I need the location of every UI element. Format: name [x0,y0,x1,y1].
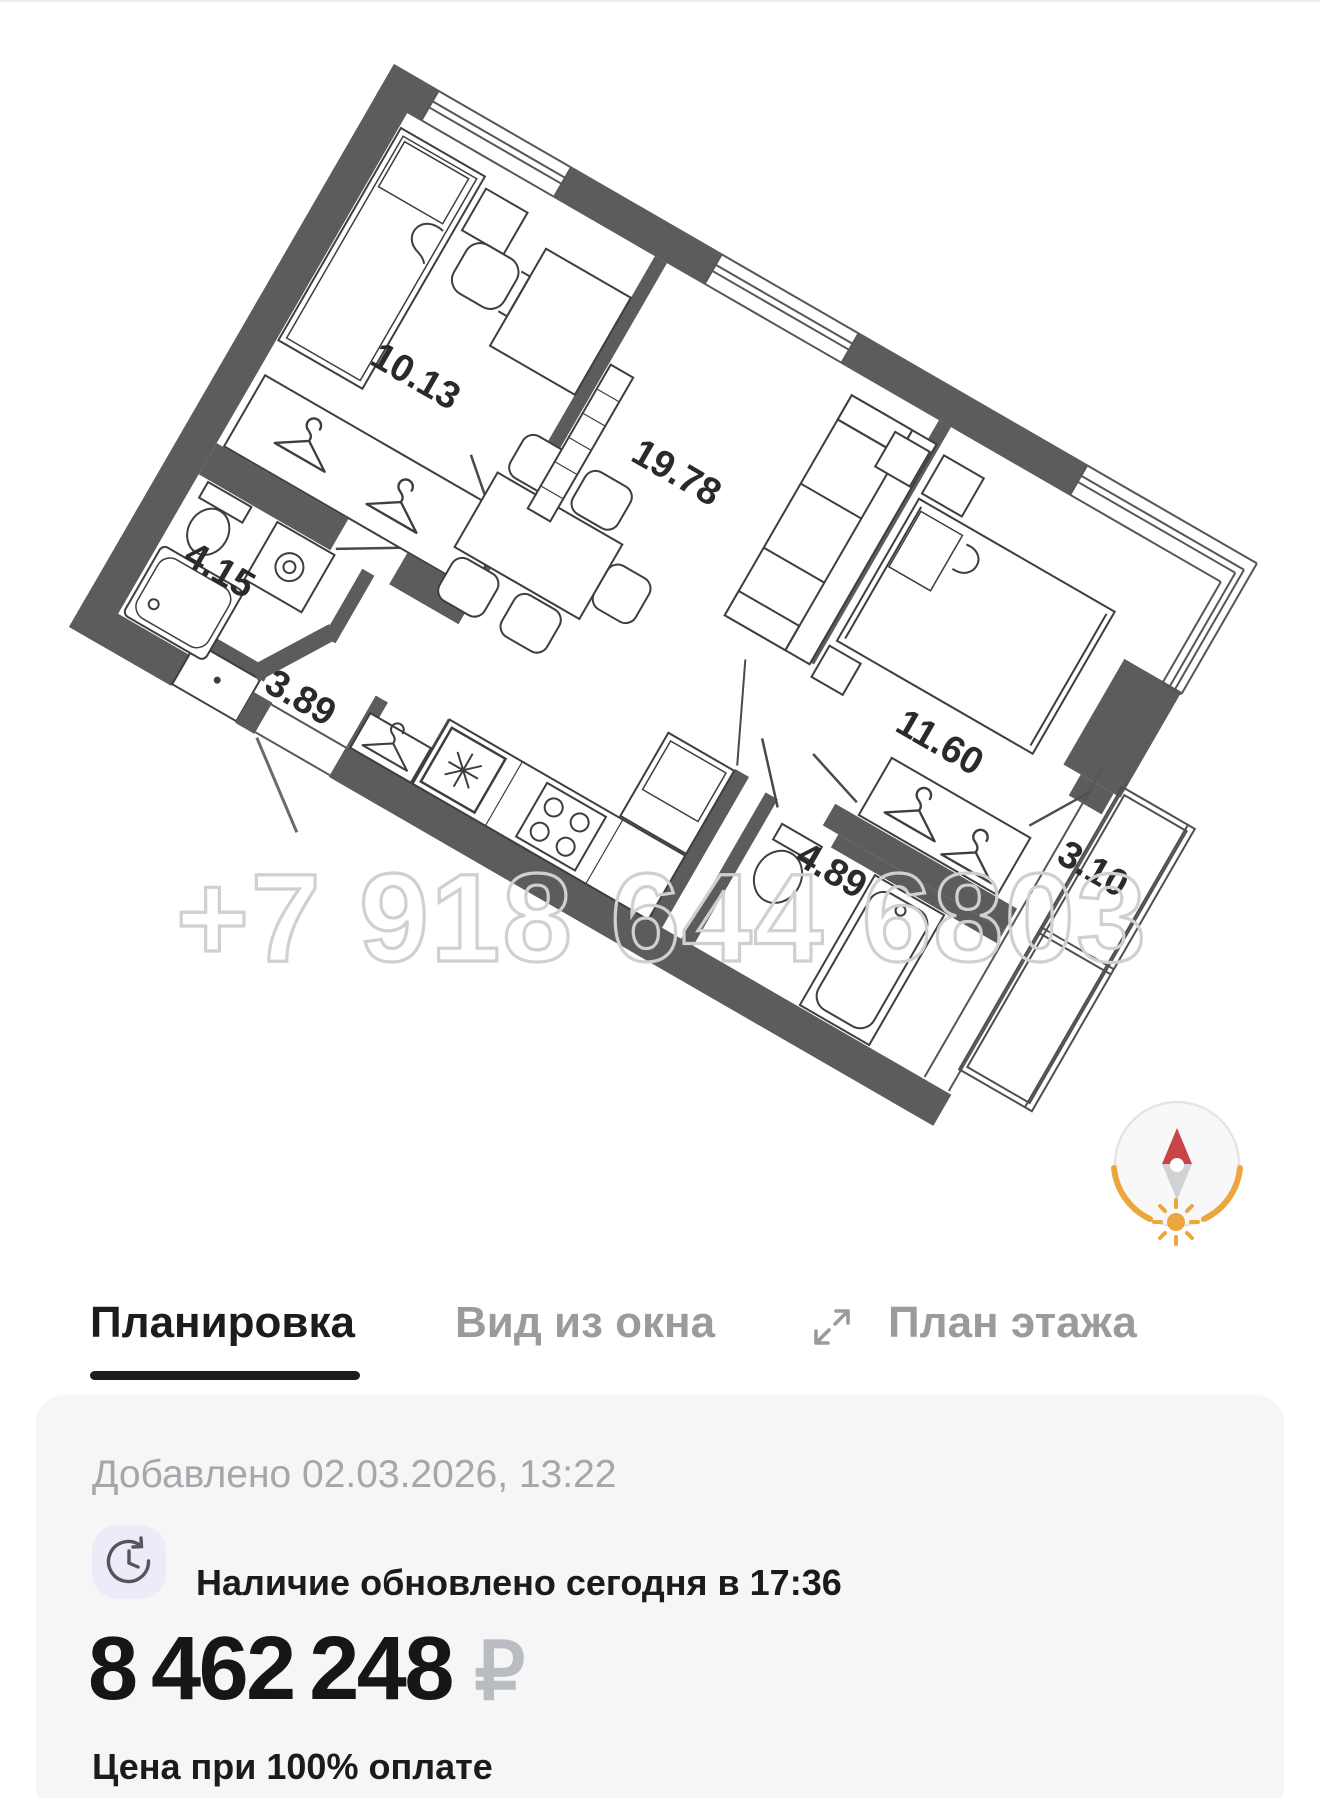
svg-text:+7 918 644 6803: +7 918 644 6803 [176,849,1148,988]
